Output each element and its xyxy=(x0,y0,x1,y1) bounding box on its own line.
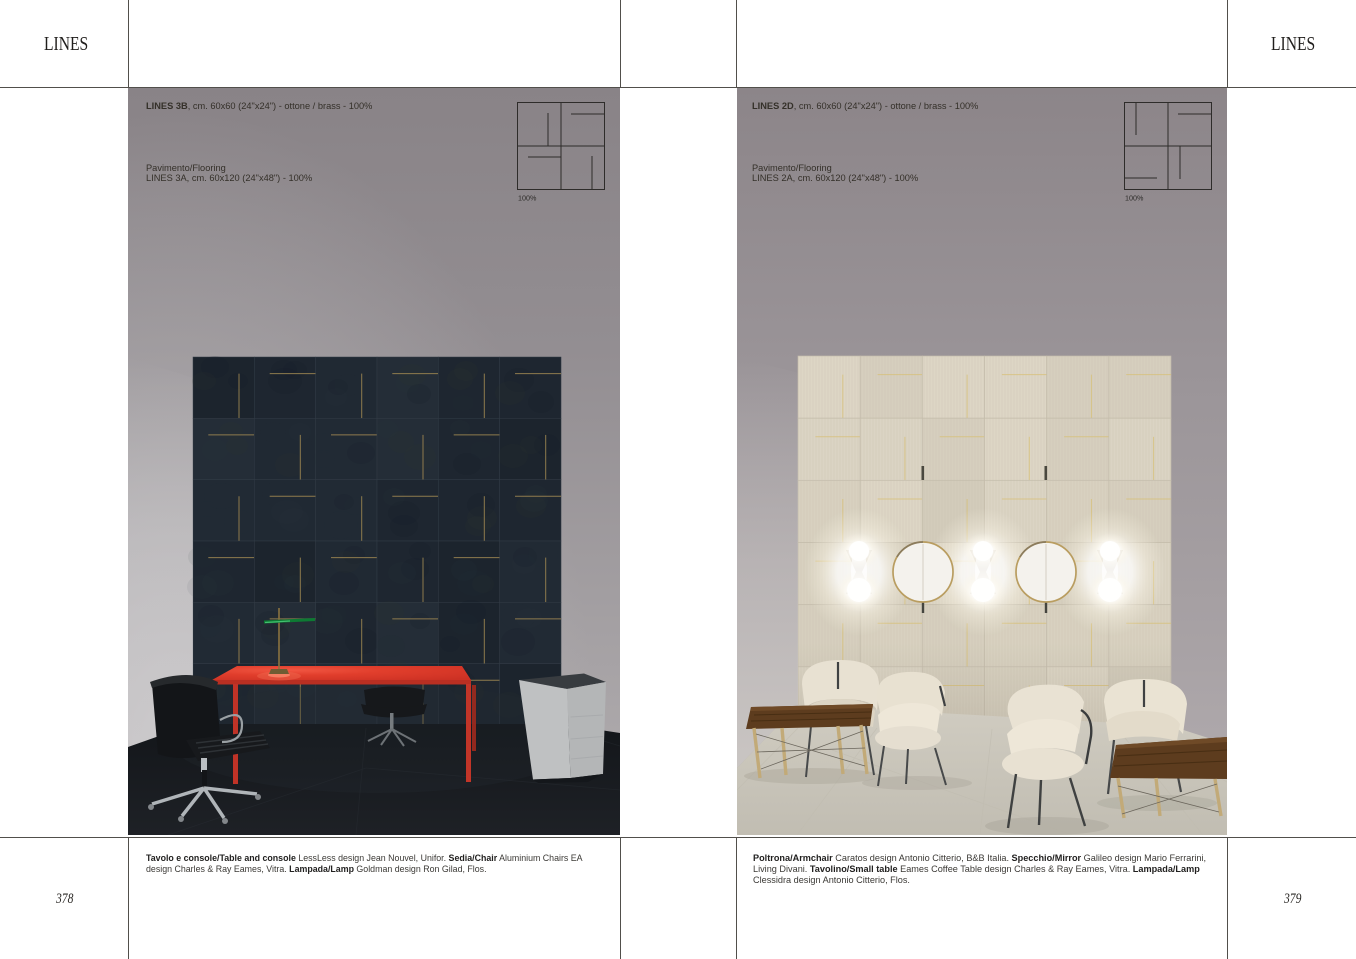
svg-text:100%: 100% xyxy=(1125,194,1144,203)
svg-text:100%: 100% xyxy=(518,194,537,203)
